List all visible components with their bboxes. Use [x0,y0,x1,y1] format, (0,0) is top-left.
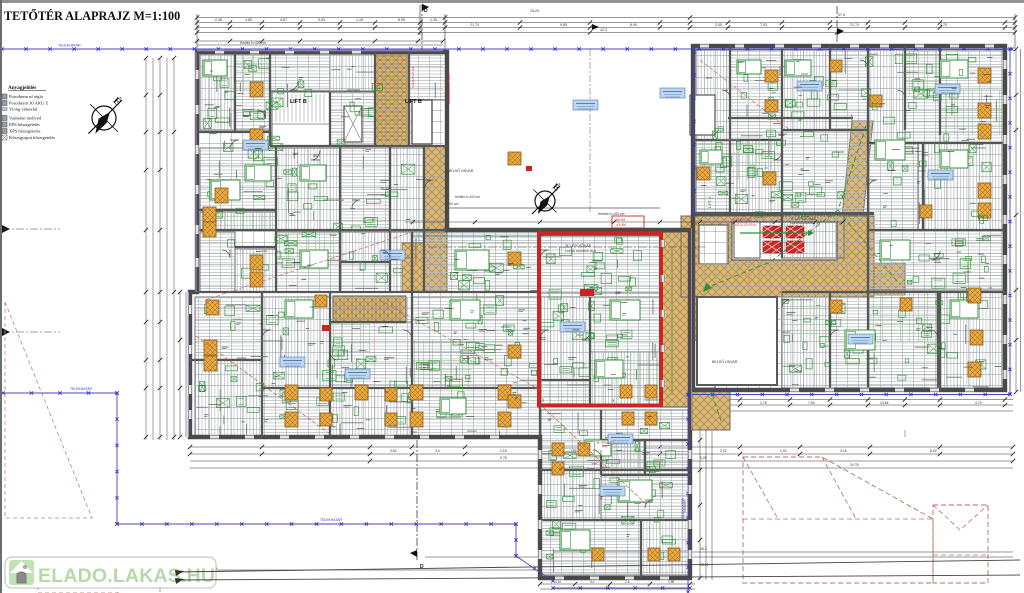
svg-text:TELEKHATÁR: TELEKHATÁR [70,387,93,391]
svg-text:3.53: 3.53 [318,18,325,22]
svg-text:TELEKHATÁR: TELEKHATÁR [320,518,343,522]
svg-text:7.54: 7.54 [808,401,815,405]
svg-text:42.3: 42.3 [600,28,607,32]
svg-text:2.18: 2.18 [500,449,507,453]
svg-text:21.74: 21.74 [850,23,859,27]
svg-text:4.67: 4.67 [280,18,287,22]
svg-text:2.6: 2.6 [625,580,630,584]
svg-text:4.70: 4.70 [975,401,982,405]
svg-text:BELSŐ UDVAR: BELSŐ UDVAR [448,168,474,173]
svg-text:Porotherm 30 AKU Z: Porotherm 30 AKU Z [9,101,48,106]
svg-text:8.90: 8.90 [630,23,637,27]
svg-text:ELADO.LAKAS.HU: ELADO.LAKAS.HU [38,565,215,587]
svg-text:Kőzetgyapot hőszigetelés: Kőzetgyapot hőszigetelés [9,135,55,140]
svg-text:9.78: 9.78 [500,456,507,460]
svg-text:Anyagjelölés: Anyagjelölés [8,85,36,91]
svg-text:3.0: 3.0 [435,449,440,453]
svg-text:Kerités h=100 cm: Kerités h=100 cm [598,212,625,216]
svg-text:3.18: 3.18 [840,449,847,453]
svg-text:15.20: 15.20 [530,9,539,13]
svg-text:A6 4M: A6 4M [616,218,626,222]
svg-text:D: D [424,8,428,14]
svg-text:Kerités h=100 cm: Kerités h=100 cm [455,195,480,199]
svg-text:"B" LÉPCSŐHÁZI: "B" LÉPCSŐHÁZI [565,243,591,248]
svg-text:3.82: 3.82 [390,449,397,453]
svg-text:1.35: 1.35 [430,18,437,22]
svg-text:3.0: 3.0 [590,580,595,584]
svg-text:TELEKHATÁR: TELEKHATÁR [755,44,778,48]
svg-text:TELEKHATÁR: TELEKHATÁR [681,497,685,520]
svg-text:TŰZGÁTLÓ FAL: TŰZGÁTLÓ FAL [410,65,415,88]
svg-text:1.15: 1.15 [356,18,363,22]
svg-text:TELEKHATÁR: TELEKHATÁR [712,389,735,393]
svg-text:57.6: 57.6 [838,13,845,17]
svg-text:EPS hőszigetelés: EPS hőszigetelés [9,122,40,127]
svg-text:"B" ÉPÜLET: "B" ÉPÜLET [596,440,614,445]
svg-text:21.74: 21.74 [470,23,479,27]
svg-text:9.69: 9.69 [560,23,567,27]
svg-text:24.78: 24.78 [850,463,859,467]
svg-text:TELEKHATÁR: TELEKHATÁR [58,44,81,48]
svg-text:2.05: 2.05 [715,23,722,27]
svg-text:LIFT B: LIFT B [405,99,422,105]
svg-text:LIFT B: LIFT B [290,99,307,105]
svg-text:Porotherm nf tégla: Porotherm nf tégla [9,94,43,99]
svg-text:TETŐTÉR ALAPRAJZ M=1:100: TETŐTÉR ALAPRAJZ M=1:100 [4,8,180,23]
svg-text:1.98: 1.98 [668,580,674,584]
svg-text:4.5 4M: 4.5 4M [616,223,626,227]
svg-text:Vasbeton mellvéd: Vasbeton mellvéd [9,116,42,121]
svg-text:8.62: 8.62 [930,449,937,453]
svg-text:28.2: 28.2 [700,547,707,551]
svg-text:4.80: 4.80 [245,18,252,22]
svg-text:XPS hőszigetelés: XPS hőszigetelés [9,129,41,134]
svg-text:1.02: 1.02 [780,449,787,453]
svg-text:28.21: 28.21 [700,563,709,567]
svg-text:2.38: 2.38 [215,18,222,22]
svg-text:4.70: 4.70 [940,23,947,27]
svg-text:5.28: 5.28 [700,456,707,460]
svg-text:Ytong válaszfal: Ytong válaszfal [9,107,38,112]
svg-text:D: D [420,564,424,570]
svg-text:13.64: 13.64 [880,401,889,405]
svg-text:MENEKÜLÉSI IRÁNY: MENEKÜLÉSI IRÁNY [446,72,451,104]
svg-text:Kerités h=400 cm: Kerités h=400 cm [240,41,266,45]
svg-text:1.78: 1.78 [760,401,767,405]
svg-text:7.03: 7.03 [760,23,767,27]
svg-text:8.90: 8.90 [398,18,405,22]
svg-text:4.10: 4.10 [555,580,561,584]
svg-text:BELSŐ UDVAR: BELSŐ UDVAR [712,359,738,364]
svg-text:LAKÁS SZÁMOK 2011: LAKÁS SZÁMOK 2011 [565,249,597,253]
svg-text:TÜZOLTÓ FELV.: TÜZOLTÓ FELV. [733,222,757,227]
svg-text:3.02: 3.02 [720,449,727,453]
svg-text:"B" ÉP.: "B" ÉP. [380,186,391,191]
svg-text:A2 LÉPCSŐ: A2 LÉPCSŐ [733,217,752,222]
svg-text:LAKÁSSZÁMOK 1-26: LAKÁSSZÁMOK 1-26 [790,221,820,225]
